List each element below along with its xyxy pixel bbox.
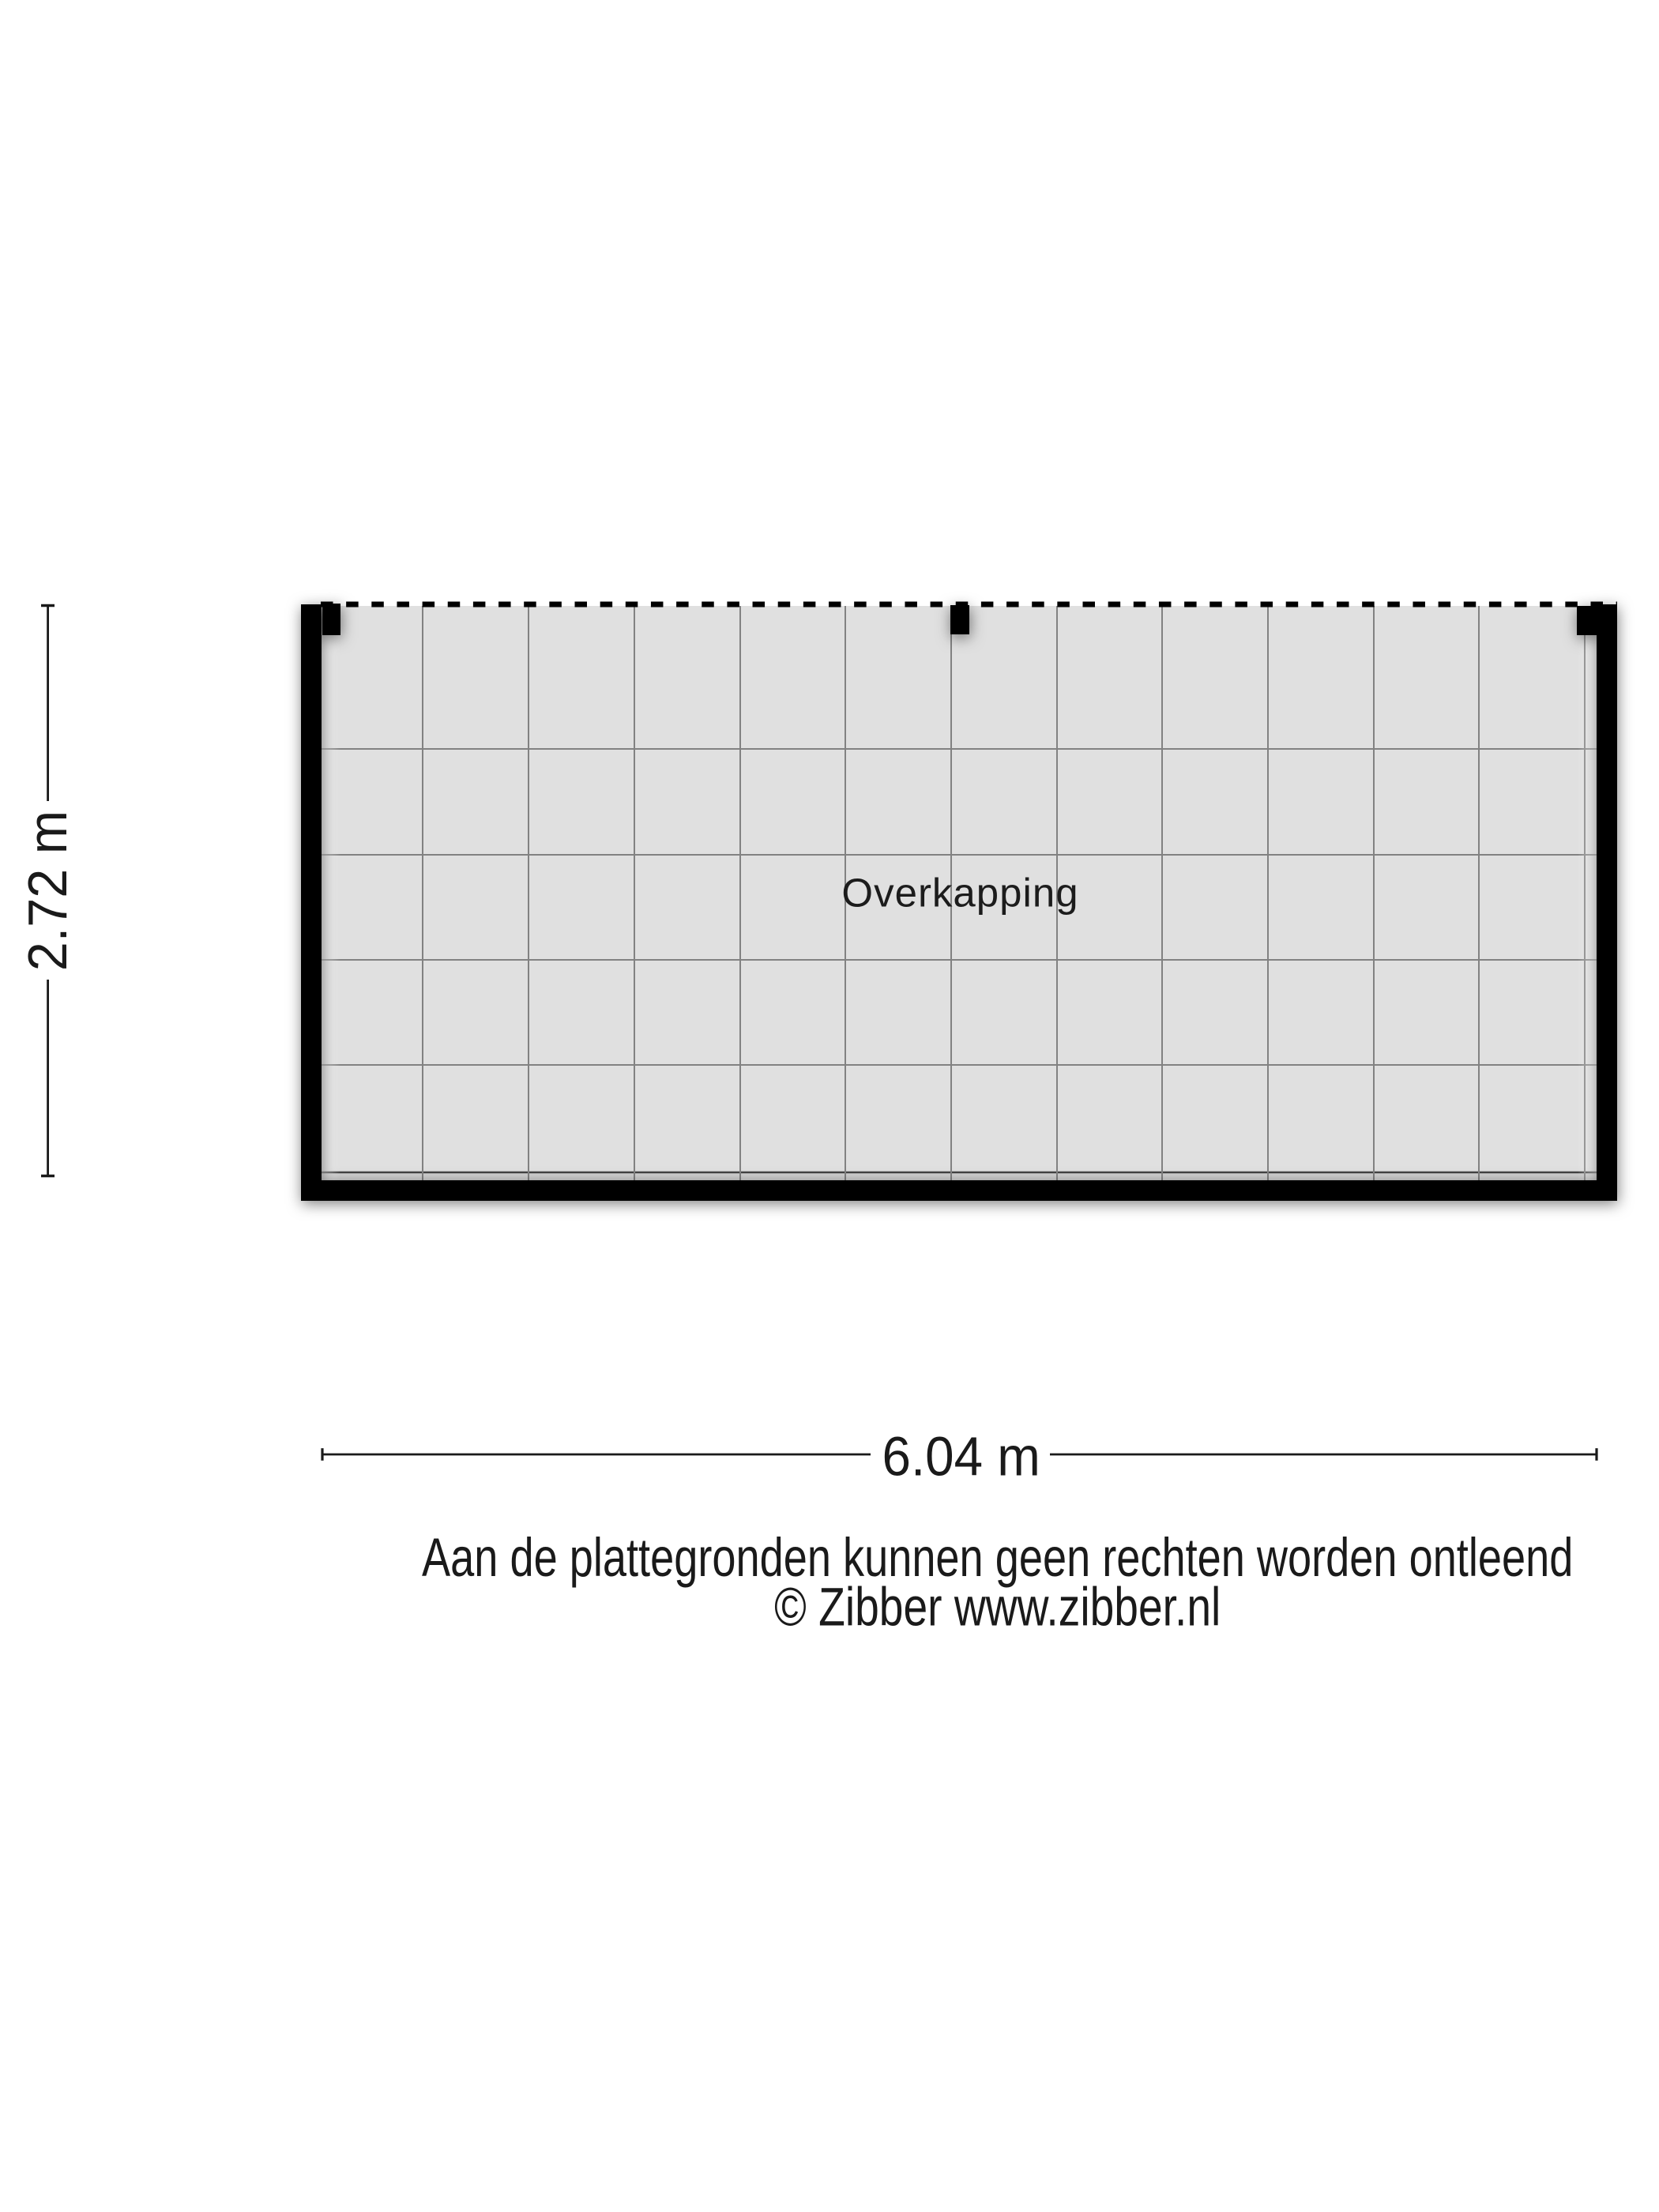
svg-text:6.04 m: 6.04 m [882,1427,1040,1488]
svg-text:2.72 m: 2.72 m [17,811,78,971]
svg-text:© Zibber www.zibber.nl: © Zibber www.zibber.nl [774,1577,1221,1638]
svg-text:Overkapping: Overkapping [841,871,1078,916]
